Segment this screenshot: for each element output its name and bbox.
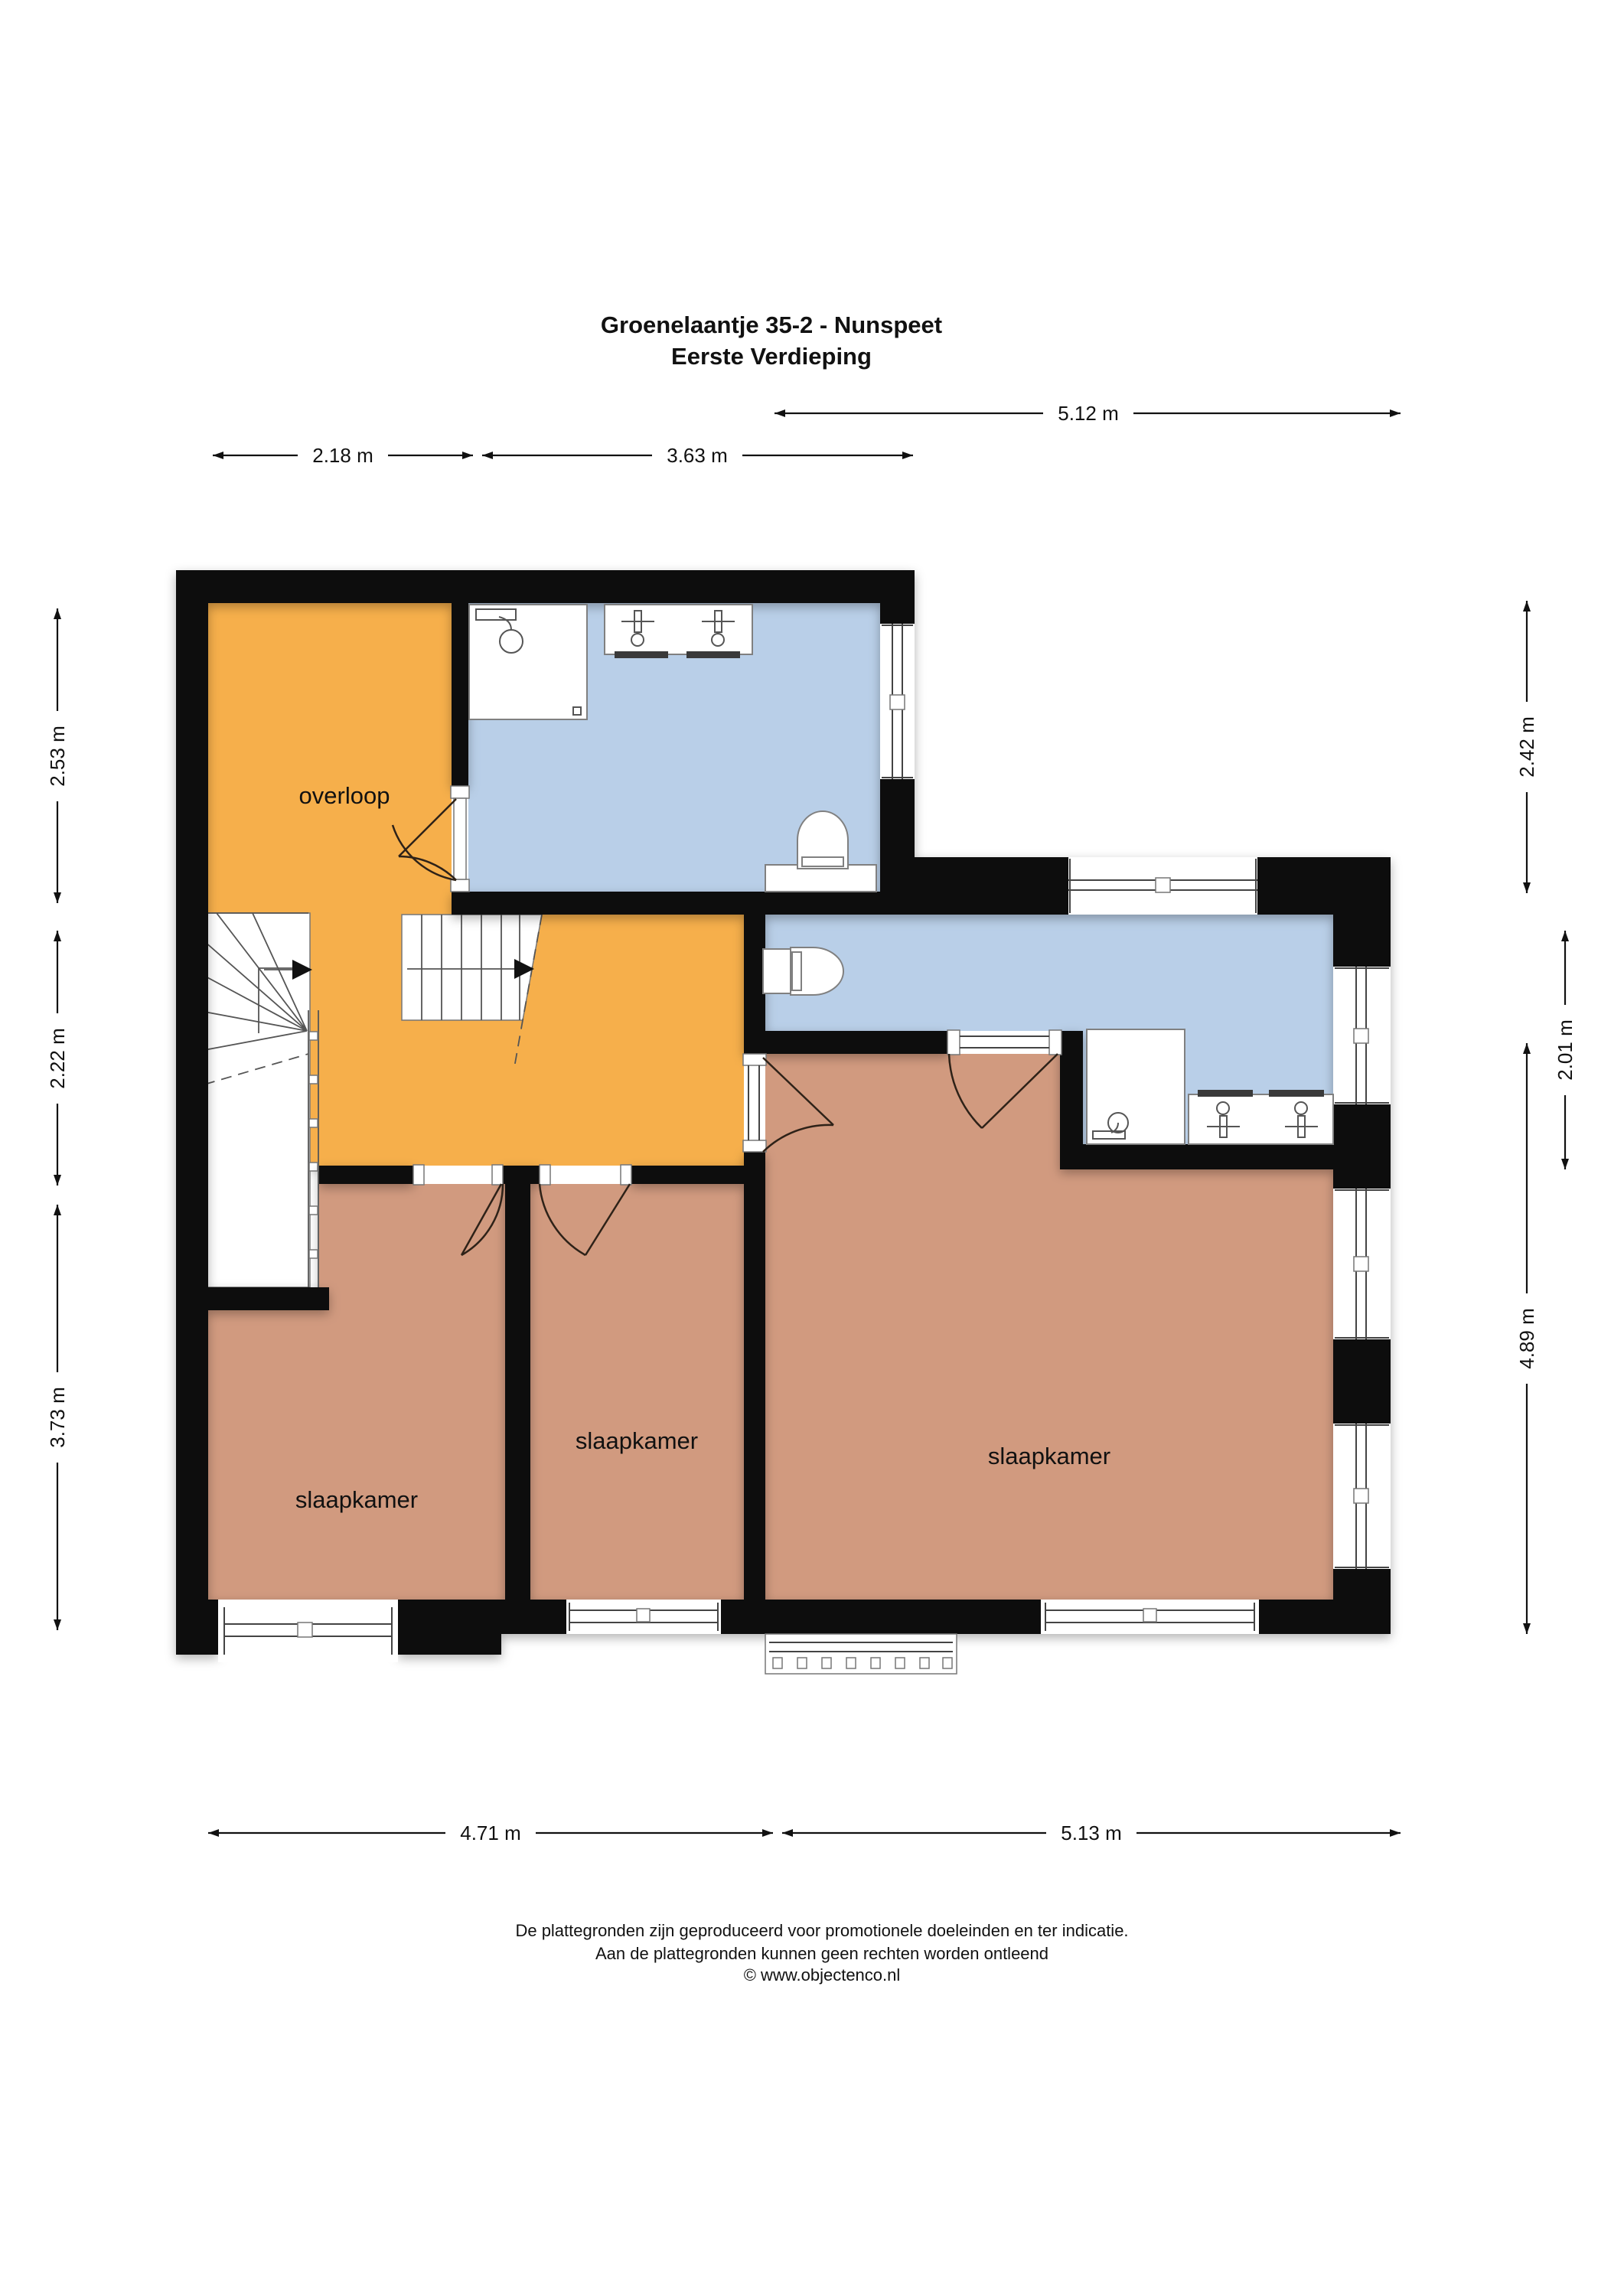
window-right-b: [1333, 1189, 1391, 1339]
wall-bedroom2-bedroom3: [744, 1152, 765, 1600]
label-overloop: overloop: [299, 782, 390, 809]
dim-left-2: 2.22 m: [44, 931, 70, 1186]
dim-label: 4.71 m: [460, 1821, 521, 1844]
overloop-upper-arm: [208, 601, 452, 915]
title-line-1: Groenelaantje 35-2 - Nunspeet: [601, 311, 942, 338]
wall-overloop-bathroom1: [452, 601, 468, 786]
label-bedroom-1: slaapkamer: [295, 1486, 418, 1513]
floor-plan-page: Groenelaantje 35-2 - Nunspeet Eerste Ver…: [0, 0, 1624, 2296]
toilet-bathroom2: [763, 947, 843, 995]
wall-bottom-step: [398, 1600, 501, 1655]
wall-bathroom1-bottom: [452, 892, 934, 915]
dim-label: 2.22 m: [46, 1028, 69, 1089]
dim-bottom-1: 4.71 m: [208, 1820, 773, 1846]
dim-label: 3.63 m: [667, 444, 728, 467]
window-right-c: [1333, 1424, 1391, 1569]
shower-bathroom2: [1087, 1029, 1185, 1144]
bedroom-1-upper: [319, 1182, 507, 1320]
wall-bottom-left-step: [176, 1600, 218, 1655]
dim-label: 2.42 m: [1515, 716, 1538, 778]
dim-right-3: 4.89 m: [1514, 1043, 1540, 1634]
wall-overloop-bottom-a: [319, 1166, 413, 1184]
window-bathroom1: [880, 624, 915, 779]
window-bedroom3: [1041, 1600, 1259, 1634]
page-title: Groenelaantje 35-2 - Nunspeet Eerste Ver…: [601, 311, 942, 370]
dim-right-1: 2.42 m: [1514, 601, 1540, 893]
wall-top: [176, 570, 915, 603]
label-bedroom-3: slaapkamer: [988, 1443, 1110, 1469]
dim-top-left-1: 2.18 m: [213, 442, 473, 468]
wall-stairvoid-bottom: [204, 1287, 329, 1310]
footer-disclaimer: De plattegronden zijn geproduceerd voor …: [515, 1921, 1128, 1985]
wall-bathroom2-bottom: [761, 1031, 949, 1054]
dim-label: 4.89 m: [1515, 1308, 1538, 1369]
dim-label: 5.12 m: [1058, 402, 1119, 425]
bedroom-3-left: [765, 1054, 1061, 1601]
window-top-right-section: [1068, 857, 1257, 915]
wall-bedroom1-bedroom2: [505, 1184, 530, 1600]
window-bedroom2: [566, 1600, 721, 1634]
wall-bathroom2-alcove-bottom: [1060, 1144, 1333, 1169]
window-bedroom1: [218, 1600, 398, 1662]
room-bedroom-2: [530, 1182, 745, 1601]
bedroom-1-lower: [208, 1309, 507, 1601]
shower-bathroom1: [469, 605, 587, 719]
dim-label: 2.53 m: [46, 726, 69, 787]
double-sink-bathroom2: [1189, 1090, 1333, 1144]
footer-line-2: Aan de plattegronden kunnen geen rechten…: [595, 1944, 1048, 1963]
dim-right-2: 2.01 m: [1552, 931, 1578, 1169]
french-balcony: [765, 1634, 957, 1674]
dim-label: 2.18 m: [312, 444, 373, 467]
dim-top-left-2: 3.63 m: [482, 442, 913, 468]
bedroom-3-right: [1060, 1169, 1333, 1601]
dim-label: 3.73 m: [46, 1387, 69, 1448]
dim-label: 2.01 m: [1554, 1019, 1577, 1081]
wall-overloop-bottom-b: [503, 1166, 540, 1184]
footer-line-3: © www.objectenco.nl: [744, 1965, 901, 1985]
wall-bedroom3-left-upper: [744, 892, 765, 1054]
wall-left: [176, 570, 208, 1634]
title-line-2: Eerste Verdieping: [671, 343, 872, 370]
dim-left-3: 3.73 m: [44, 1205, 70, 1630]
dim-label: 5.13 m: [1061, 1821, 1122, 1844]
window-right-a: [1333, 967, 1391, 1104]
label-bedroom-2: slaapkamer: [576, 1427, 698, 1454]
winder-staircase: [204, 913, 318, 1287]
dim-left-1: 2.53 m: [44, 608, 70, 903]
footer-line-1: De plattegronden zijn geproduceerd voor …: [515, 1921, 1128, 1940]
double-sink-bathroom1: [605, 605, 752, 658]
bathroom-2-main: [761, 915, 1333, 1032]
dim-bottom-2: 5.13 m: [782, 1820, 1401, 1846]
dim-top-right: 5.12 m: [774, 400, 1401, 426]
